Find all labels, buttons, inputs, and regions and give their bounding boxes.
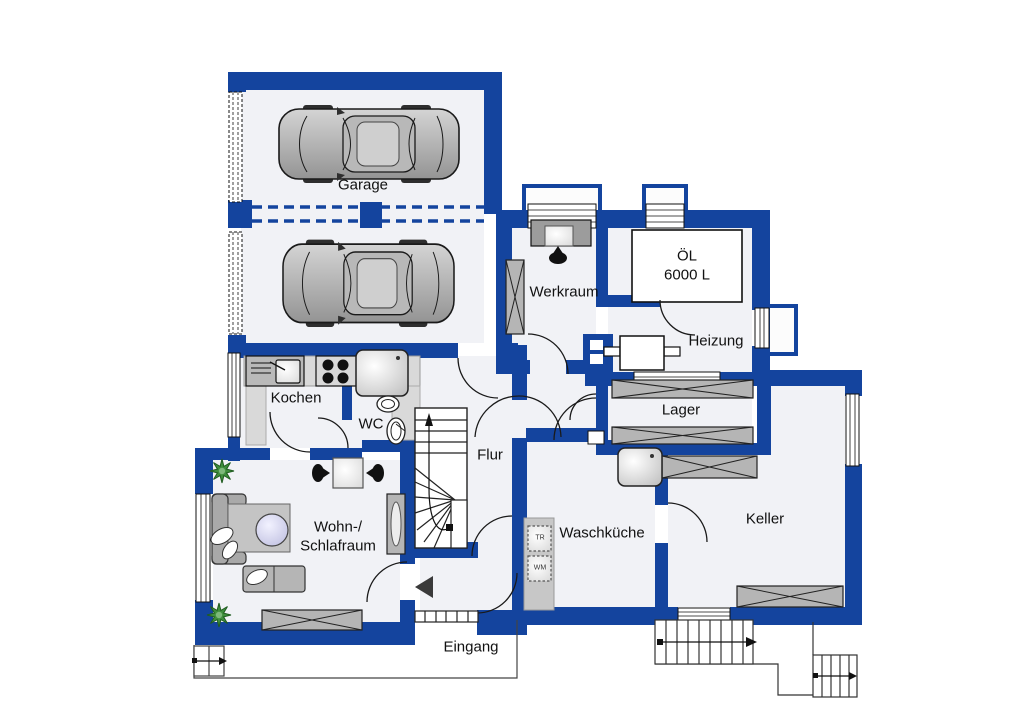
car-2: [283, 240, 454, 327]
round-table: [256, 514, 288, 546]
flue-access: [588, 431, 604, 444]
sideboard: [262, 610, 362, 630]
lager-shelf-bottom: [612, 427, 753, 444]
label-garage: Garage: [338, 177, 388, 196]
label-flur: Flur: [477, 447, 503, 466]
living-window: [196, 494, 210, 602]
lager-shelf-top: [612, 380, 753, 398]
label-dryer: TR: [535, 535, 544, 544]
label-lager: Lager: [662, 402, 700, 421]
floor-plan-drawing: [0, 0, 1024, 724]
car-1: [279, 105, 459, 183]
wardrobe: [387, 494, 405, 554]
label-washer: WM: [534, 565, 546, 574]
exterior-stairs: [655, 620, 857, 697]
toilet: [377, 396, 399, 412]
kitchen-window: [228, 353, 240, 437]
shower: [356, 350, 408, 396]
interior-staircase: [415, 408, 467, 548]
keller-shelf-top: [662, 456, 757, 478]
label-eingang: Eingang: [443, 639, 498, 658]
garage-door-1: [229, 92, 242, 202]
label-wohn-schlafraum: Wohn-/ Schlafraum: [300, 518, 376, 556]
keller-window-right: [846, 394, 859, 466]
label-wc: WC: [359, 416, 384, 435]
laundry-shower: [618, 448, 662, 486]
floor-plan-page: Garage Werkraum ÖL 6000 L Heizung Lager …: [0, 0, 1024, 724]
label-keller: Keller: [746, 511, 784, 530]
label-heizung: Heizung: [688, 333, 743, 352]
plant-top: [210, 459, 234, 483]
heizung-window: [755, 308, 769, 348]
label-oil-tank: ÖL 6000 L: [664, 247, 710, 285]
keller-window-bottom: [678, 608, 730, 621]
werkraum-shelf: [506, 260, 524, 334]
small-sofa: [243, 566, 305, 592]
plant-bottom: [207, 603, 231, 627]
label-werkraum: Werkraum: [530, 284, 599, 303]
label-kochen: Kochen: [271, 390, 322, 409]
doormat: [415, 611, 478, 622]
dining-table: [333, 458, 363, 488]
keller-shelf-bottom: [737, 586, 843, 607]
garage-door-2: [229, 232, 242, 334]
label-waschkueche: Waschküche: [559, 525, 644, 544]
